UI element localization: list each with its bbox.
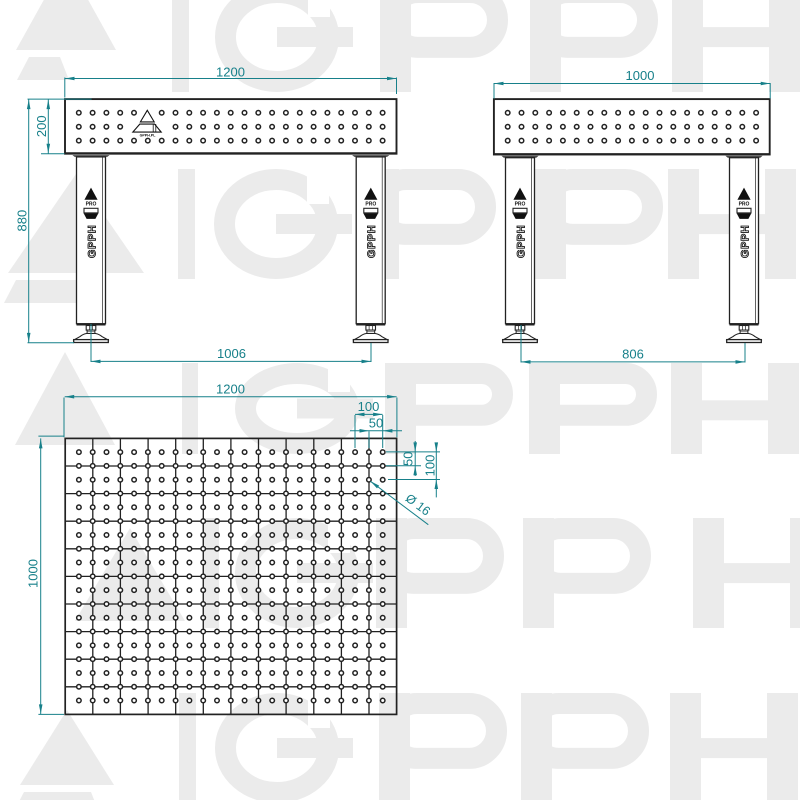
svg-text:200: 200 [34,115,49,137]
svg-text:PRO: PRO [739,202,750,208]
svg-text:GPPH: GPPH [366,225,378,258]
svg-text:PRO: PRO [515,202,526,208]
svg-text:GPPH: GPPH [515,225,527,258]
svg-text:1000: 1000 [26,559,41,588]
svg-text:GPPH: GPPH [86,225,98,258]
svg-text:100: 100 [423,455,438,477]
svg-text:PRO: PRO [365,202,376,208]
svg-text:1006: 1006 [217,346,246,361]
svg-text:1200: 1200 [216,64,245,79]
svg-text:Ø 16: Ø 16 [403,491,433,518]
svg-text:880: 880 [15,210,30,232]
svg-text:PRO: PRO [86,202,97,208]
svg-text:GPPH: GPPH [739,225,751,258]
svg-text:50: 50 [369,416,383,431]
svg-text:806: 806 [622,347,644,362]
svg-text:1200: 1200 [216,381,245,396]
svg-text:GPPH.PL: GPPH.PL [140,133,157,137]
svg-text:100: 100 [358,399,380,414]
svg-text:1000: 1000 [626,68,655,83]
svg-text:50: 50 [401,452,416,466]
